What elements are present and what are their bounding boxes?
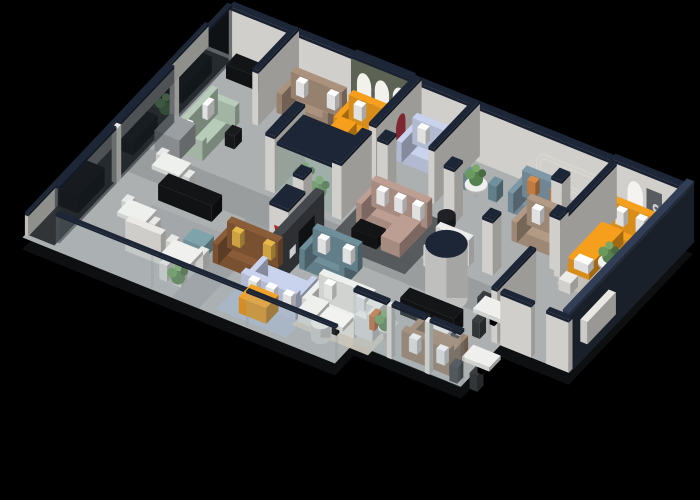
- right-glass-c: [430, 316, 465, 388]
- eastwall-front-a: [500, 288, 535, 358]
- pillar-4: [482, 208, 501, 276]
- pillar-2: [549, 204, 568, 272]
- eastwall-front-b: [546, 307, 572, 373]
- floorplan-render: S: [0, 0, 700, 500]
- showroom-screenshot: S: [0, 0, 700, 500]
